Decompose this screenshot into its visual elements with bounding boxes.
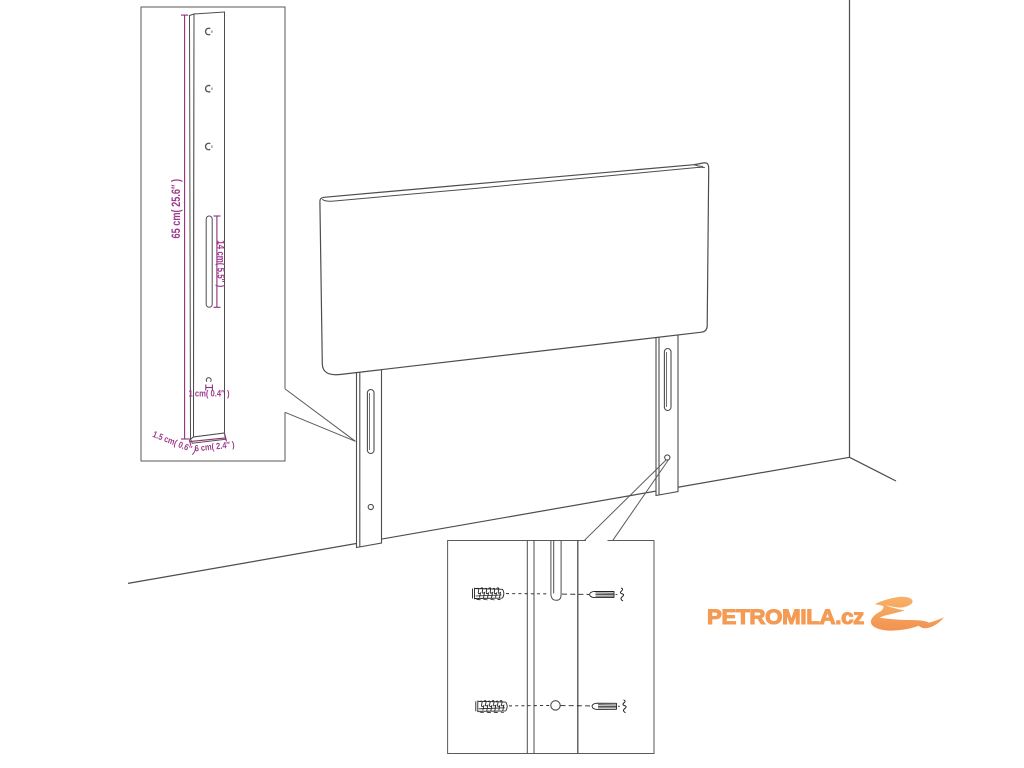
svg-text:65 cm( 25.6″ ): 65 cm( 25.6″ )	[169, 179, 183, 239]
svg-text:14 cm( 5.5″ ): 14 cm( 5.5″ )	[214, 240, 226, 287]
svg-text:1 cm( 0.4″ ): 1 cm( 0.4″ )	[189, 389, 230, 399]
svg-text:PETROMILA.cz: PETROMILA.cz	[707, 605, 864, 629]
